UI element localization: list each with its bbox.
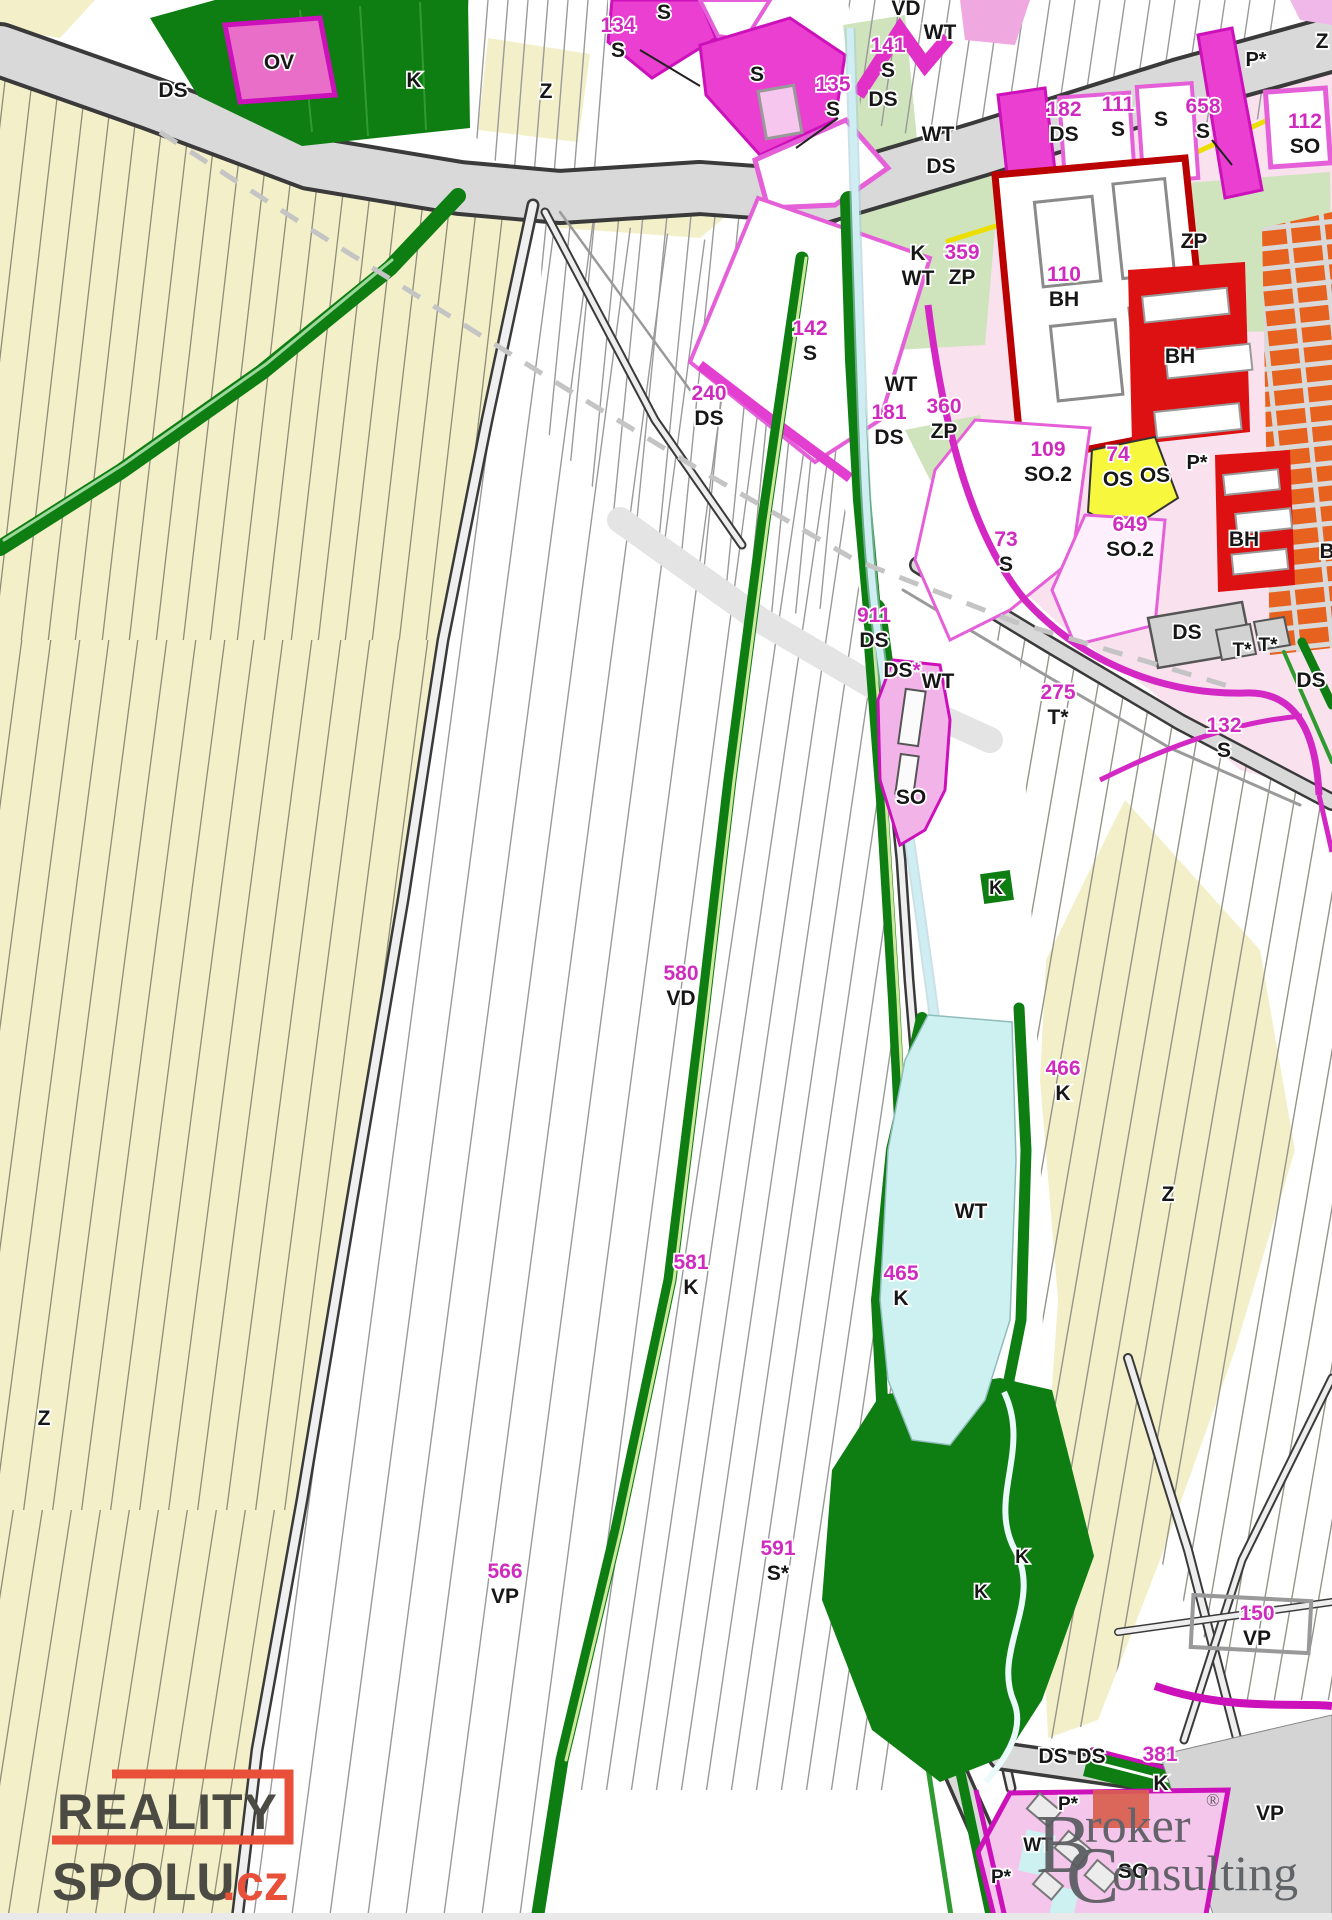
bottom-edge <box>0 1913 1332 1920</box>
map-label: VD <box>891 0 920 20</box>
broker-logo-onsulting: onsulting <box>1112 1845 1298 1901</box>
map-label: DS* <box>883 659 921 682</box>
reality-logo-line1: REALITY <box>57 1784 278 1840</box>
map-label: 381 <box>1142 1743 1177 1766</box>
map-label: WT <box>922 123 955 146</box>
map-label: BH <box>1165 345 1195 368</box>
map-label: DS <box>1296 669 1325 692</box>
map-label: Z <box>38 1407 51 1430</box>
map-label: P* <box>1186 452 1207 474</box>
map-label: VP <box>1256 1802 1284 1825</box>
map-label: Z <box>1162 1183 1175 1206</box>
map-label: OS <box>1140 464 1170 487</box>
map-label: T* <box>1259 635 1279 656</box>
map-label: K <box>989 878 1003 899</box>
map-label: DS <box>1076 1745 1105 1768</box>
map-label: WT <box>924 21 957 44</box>
map-label: S <box>657 1 671 24</box>
broker-logo-reg: ® <box>1206 1790 1220 1810</box>
map-label: WT <box>885 373 918 396</box>
reality-logo-line2: SPOLU <box>52 1853 235 1912</box>
map-label: Z <box>1316 30 1329 53</box>
map-label: K <box>974 1582 988 1603</box>
map-label: OV <box>264 51 294 74</box>
map-label: K <box>1153 1772 1168 1795</box>
map-label: T* <box>1233 640 1253 661</box>
map-label: DS <box>926 155 955 178</box>
map-label: DS <box>868 88 897 111</box>
map-label: WT <box>955 1200 988 1223</box>
map-label: K <box>406 69 421 92</box>
map-label: BH <box>1229 528 1259 551</box>
map-label: BI <box>1320 540 1332 563</box>
map-label: DS <box>1038 1745 1067 1768</box>
reality-spolu-logo: REALITY SPOLU .cz <box>52 1774 289 1912</box>
map-label: WT <box>922 670 955 693</box>
map-label: ZP <box>1181 230 1208 253</box>
map-label: K <box>1015 1547 1029 1568</box>
map-label: Z <box>540 80 553 103</box>
zoning-map: DSOVKZ134SSS135S141SVDWTDSWTDS182DS111SS… <box>0 0 1332 1920</box>
map-label: DS <box>158 79 187 102</box>
reality-logo-tld: .cz <box>222 1855 289 1911</box>
map-label: DS <box>1172 621 1201 644</box>
zoning-map-screenshot: DSOVKZ134SSS135S141SVDWTDSWTDS182DS111SS… <box>0 0 1332 1920</box>
map-label: P* <box>1245 49 1266 71</box>
map-label: S <box>1154 108 1168 131</box>
map-label: S <box>750 63 764 86</box>
zone-orange-blocks <box>1262 212 1332 655</box>
map-label: P* <box>991 1867 1012 1888</box>
map-label: SO <box>896 786 926 809</box>
